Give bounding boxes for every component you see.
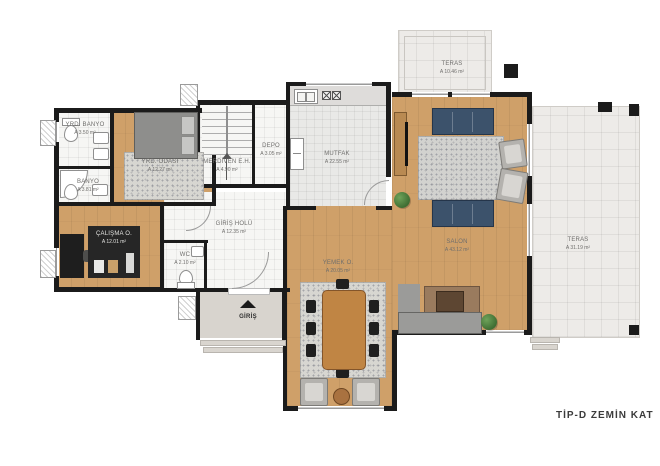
entry-step — [200, 340, 286, 346]
sofa — [432, 200, 494, 227]
room-label-teras-right: TERAS A 31.19 m² — [566, 237, 590, 251]
sofa-seam — [452, 112, 453, 132]
staircase-divider — [226, 106, 228, 155]
wall — [196, 184, 290, 188]
window — [527, 124, 532, 176]
fridge-divider — [293, 153, 301, 154]
exterior-pad — [178, 296, 196, 320]
dining-chair — [306, 300, 316, 313]
room-label-banyo: BANYO A 3.81 m² — [77, 179, 99, 193]
wall — [196, 292, 200, 340]
round-side-table — [333, 388, 350, 405]
dining-chair — [306, 322, 316, 335]
sink-bowl — [297, 92, 306, 102]
terrace-step — [532, 344, 558, 350]
dining-chair — [306, 344, 316, 357]
wall — [392, 331, 397, 411]
dining-chair — [336, 279, 349, 289]
floor-plan: GİRİŞ YRD. BANYO A 3.50 m² BANYO A 3.81 … — [0, 0, 660, 466]
room-label-giris-holu: GİRİŞ HOLÜ A 12.35 m² — [216, 221, 253, 235]
room-label-wc: WC A 2.10 m² — [174, 252, 195, 266]
dining-chair — [369, 344, 379, 357]
wall — [58, 166, 110, 169]
wall — [386, 82, 391, 177]
plant-icon — [481, 314, 497, 330]
sofa-seam — [452, 204, 453, 224]
room-label-yrd-odasi: YRD. ODASI A 12.27 m² — [142, 159, 179, 173]
terrace-door — [452, 92, 490, 97]
exterior-pad — [40, 120, 56, 146]
room-label-yrd-banyo: YRD. BANYO A 3.50 m² — [65, 122, 104, 136]
wall — [252, 104, 255, 186]
exterior-pad — [180, 84, 198, 106]
room-label-merdiven: MERDİVEN E.H. A 4.90 m² — [203, 159, 251, 173]
toilet-icon — [64, 184, 78, 200]
stair-arrow-head-icon — [222, 153, 232, 159]
cooktop-burner-icon — [332, 91, 341, 100]
room-label-salon: SALON A 43.12 m² — [445, 239, 469, 253]
armchair — [352, 378, 380, 406]
window — [412, 92, 448, 97]
wall — [376, 206, 392, 210]
wall — [164, 240, 208, 243]
entry-step — [203, 347, 283, 353]
pillow — [181, 136, 195, 155]
wall — [204, 240, 207, 292]
wall — [283, 206, 287, 410]
wall — [283, 206, 316, 210]
corner-sofa-bottom — [398, 312, 482, 334]
entrance-arrow-icon — [240, 300, 256, 308]
shelf-item — [108, 260, 118, 273]
terrace-right-floor — [532, 106, 640, 338]
plan-title: TİP-D ZEMİN KAT — [556, 410, 654, 421]
kitchen-sink-icon — [294, 89, 318, 104]
pillow — [181, 116, 195, 135]
dining-chair — [369, 322, 379, 335]
terrace-step — [530, 337, 560, 343]
column — [598, 102, 612, 112]
exterior-pad — [40, 250, 56, 278]
salon-rug — [418, 136, 504, 200]
armchair — [300, 378, 328, 406]
wall — [196, 100, 292, 105]
plant-icon — [394, 192, 410, 208]
sofa-seam — [472, 204, 473, 224]
desk — [60, 234, 84, 278]
terrace-door — [486, 330, 524, 335]
shelf-item — [94, 260, 104, 273]
room-label-mutfak: MUTFAK A 22.55 m² — [324, 151, 350, 165]
lounge-chair — [495, 168, 528, 204]
room-label-teras-top: TERAS A 10.46 m² — [440, 61, 464, 75]
column — [629, 325, 639, 335]
entrance-label: GİRİŞ — [239, 314, 257, 320]
column — [504, 64, 518, 78]
shelf-item — [126, 253, 134, 273]
wall — [160, 288, 230, 292]
entrance-threshold — [228, 288, 270, 295]
room-label-calisma: ÇALIŞMA O. A 12.01 m² — [96, 231, 132, 245]
wall — [160, 206, 164, 292]
wall — [110, 112, 114, 206]
tv — [405, 122, 408, 166]
lounge-chair — [498, 138, 528, 169]
cooktop-burner-icon — [322, 91, 331, 100]
washbasin-icon — [93, 148, 109, 160]
toilet-tank — [177, 282, 195, 289]
window — [527, 204, 532, 256]
dining-table — [322, 290, 366, 370]
window — [298, 406, 384, 411]
sofa — [432, 108, 494, 135]
room-label-yemek: YEMEK O. A 20.05 m² — [323, 260, 354, 274]
wall — [54, 287, 164, 292]
dining-chair — [369, 300, 379, 313]
sink-bowl — [306, 92, 315, 102]
coffee-table — [436, 291, 464, 312]
fridge-icon — [290, 138, 304, 170]
sofa-seam — [472, 112, 473, 132]
bed — [134, 112, 198, 159]
column — [629, 104, 639, 116]
room-label-depo: DEPO A 3.05 m² — [260, 143, 281, 157]
